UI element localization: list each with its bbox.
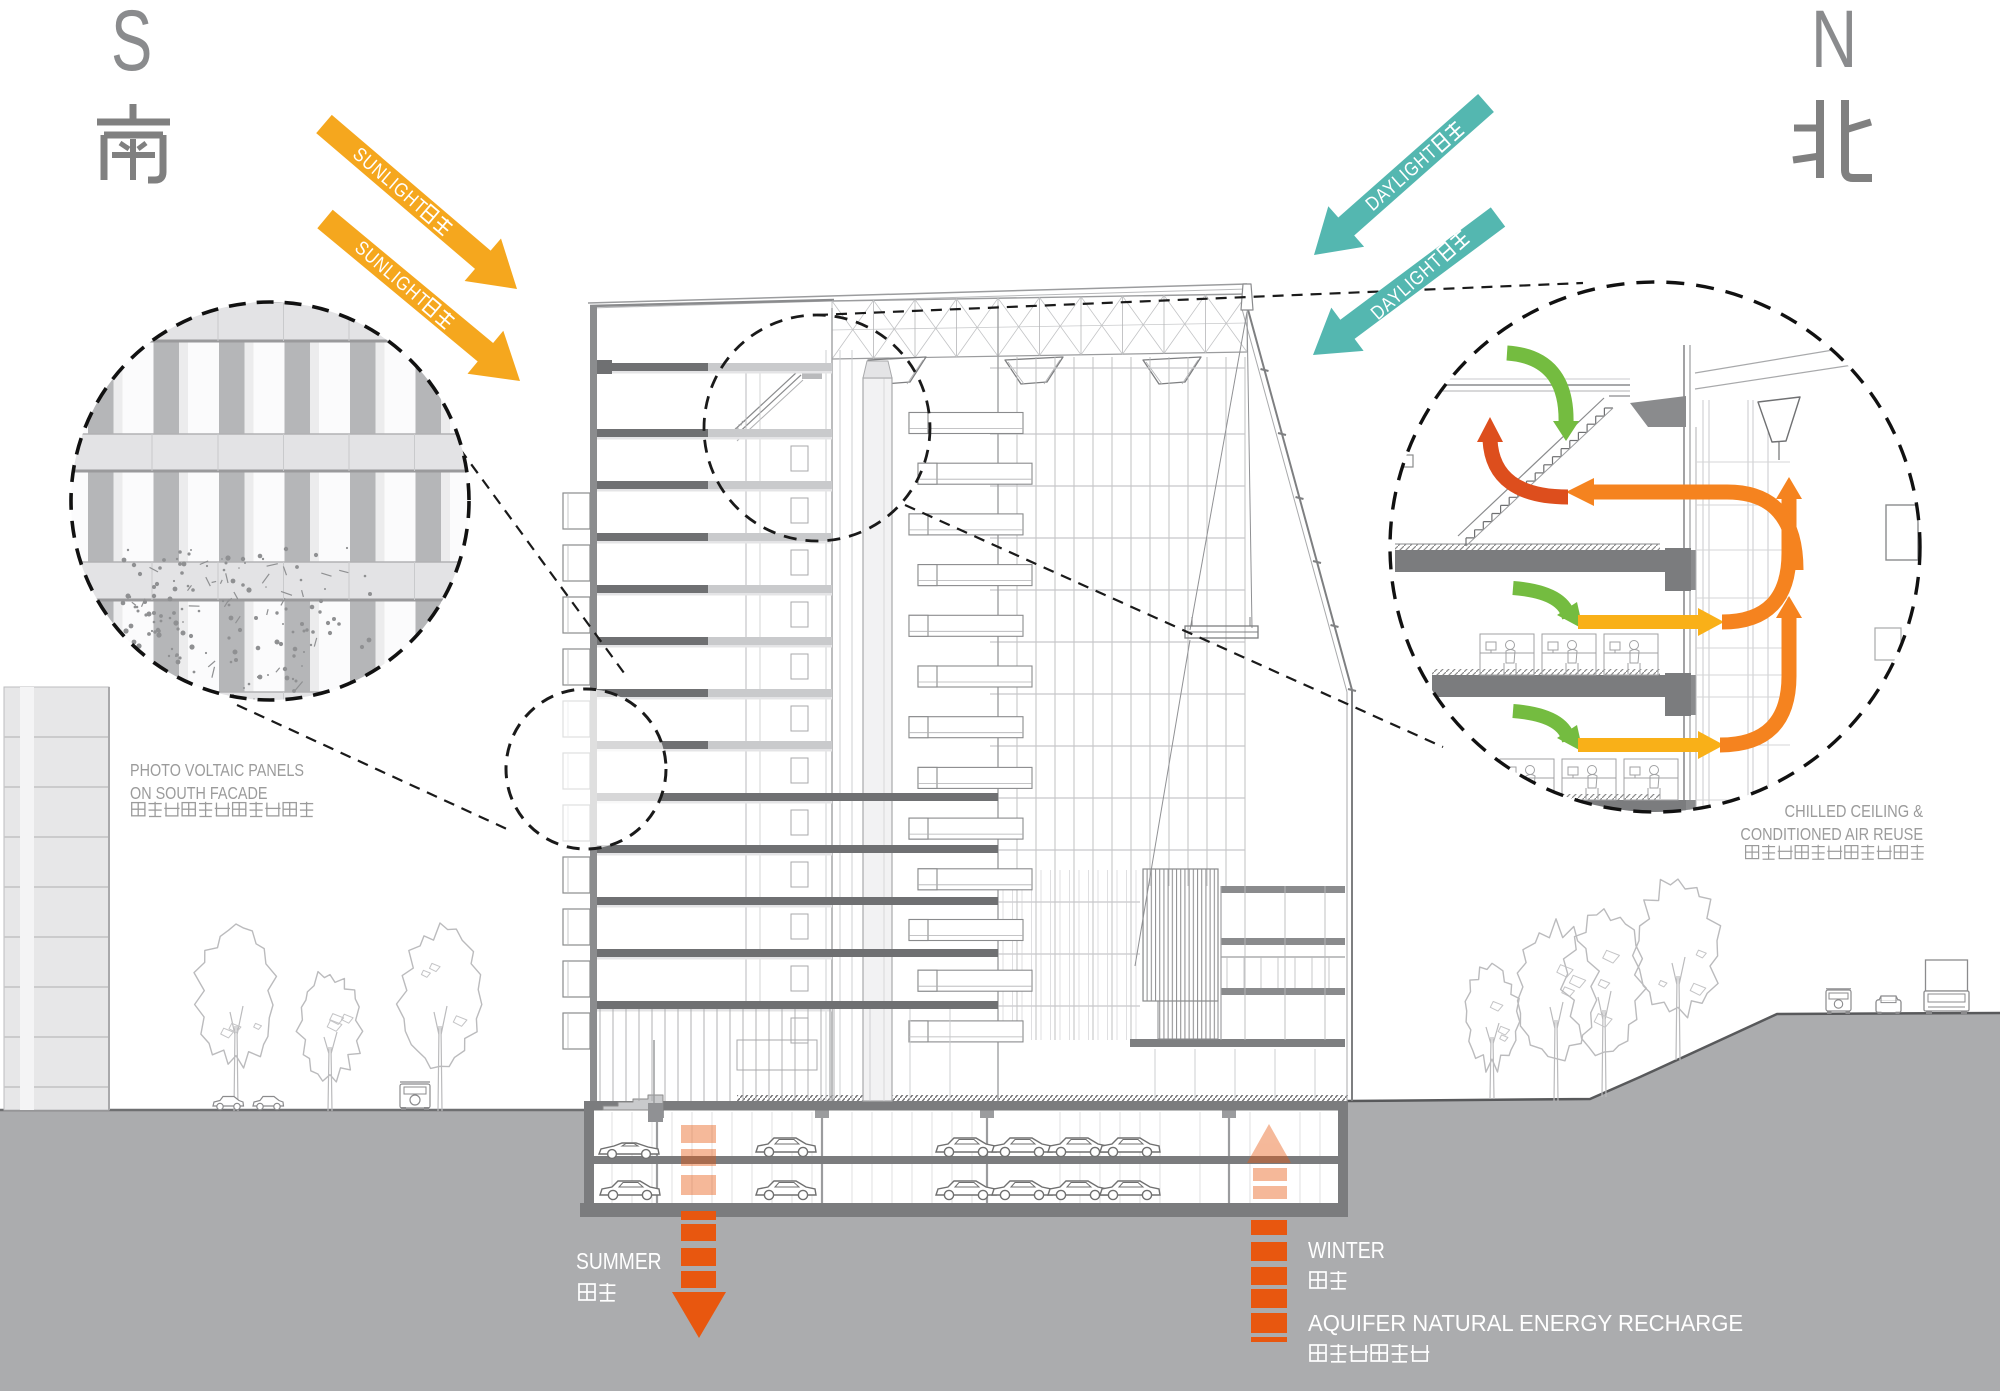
svg-text:N: N [1811, 0, 1857, 85]
svg-text:WINTER: WINTER [1308, 1236, 1385, 1263]
svg-text:PHOTO VOLTAIC PANELS: PHOTO VOLTAIC PANELS [130, 761, 304, 781]
svg-text:CONDITIONED AIR REUSE: CONDITIONED AIR REUSE [1740, 825, 1923, 845]
svg-text:SUMMER: SUMMER [576, 1248, 662, 1274]
svg-text:ON SOUTH FACADE: ON SOUTH FACADE [130, 784, 268, 804]
svg-text:CHILLED CEILING &: CHILLED CEILING & [1785, 802, 1924, 822]
svg-text:AQUIFER NATURAL ENERGY RECHARG: AQUIFER NATURAL ENERGY RECHARGE [1308, 1309, 1743, 1336]
svg-text:S: S [111, 0, 152, 88]
